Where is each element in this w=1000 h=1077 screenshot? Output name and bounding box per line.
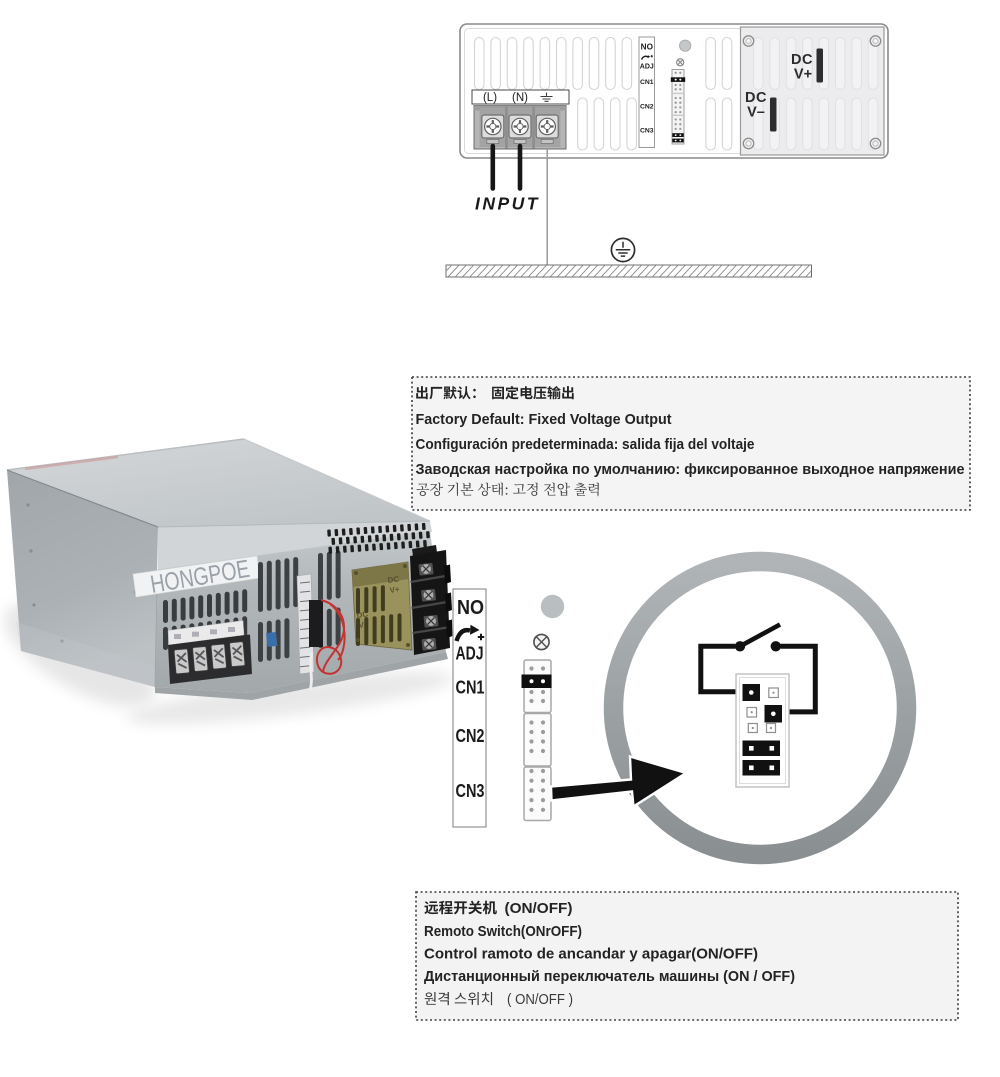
svg-text:CN2: CN2 xyxy=(456,726,485,746)
svg-text:CN1: CN1 xyxy=(456,678,485,698)
svg-text:CN1: CN1 xyxy=(640,79,654,86)
svg-text:Дистанционный переключатель ма: Дистанционный переключатель машины (ON /… xyxy=(424,968,795,985)
svg-text:Remoto Switch(ONrOFF): Remoto Switch(ONrOFF) xyxy=(424,923,582,940)
svg-text:(N): (N) xyxy=(512,92,528,104)
svg-text:V–: V– xyxy=(747,105,765,121)
svg-text:INPUT: INPUT xyxy=(475,194,540,214)
svg-text:CN3: CN3 xyxy=(640,128,654,135)
svg-text:CN3: CN3 xyxy=(456,781,485,801)
svg-text:Control ramoto de ancandar y a: Control ramoto de ancandar y apagar(ON/O… xyxy=(424,945,758,962)
svg-text:V+: V+ xyxy=(794,67,812,83)
svg-text:ADJ: ADJ xyxy=(640,64,654,71)
svg-text:DC: DC xyxy=(387,574,400,585)
svg-text:(ON/OFF): (ON/OFF) xyxy=(505,900,573,917)
svg-text:DC: DC xyxy=(356,609,369,620)
svg-text:V+: V+ xyxy=(389,585,400,595)
svg-text:(L): (L) xyxy=(483,92,497,104)
svg-text:NO: NO xyxy=(641,43,654,52)
svg-text:Заводская настройка по умолчан: Заводская настройка по умолчанию: фиксир… xyxy=(416,461,965,478)
svg-text:NO: NO xyxy=(457,597,484,619)
svg-text:Configuración predeterminada:: Configuración predeterminada: salida fij… xyxy=(416,436,755,453)
svg-text:ADJ: ADJ xyxy=(456,644,484,664)
svg-text:Factory Default: Fixed Voltage: Factory Default: Fixed Voltage Output xyxy=(416,411,672,428)
svg-text:CN2: CN2 xyxy=(640,104,654,111)
svg-text:( ON/OFF ): ( ON/OFF ) xyxy=(507,991,573,1008)
